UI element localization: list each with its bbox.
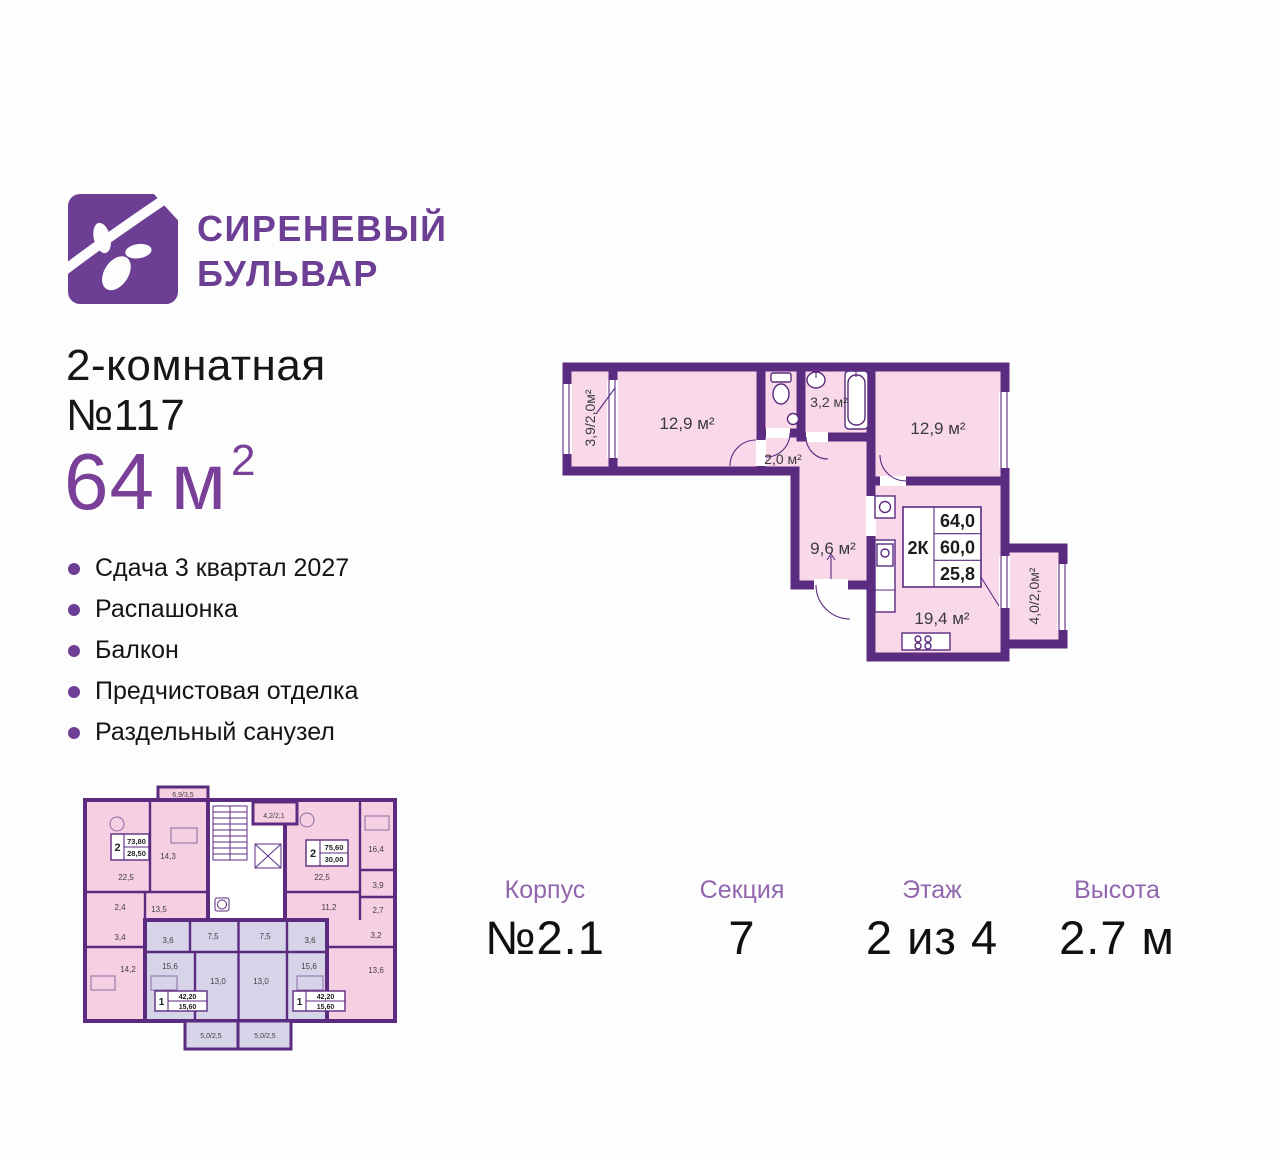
room-label: 9,6 м²	[810, 539, 856, 558]
room-label: 7,5	[259, 932, 271, 941]
room-label: 11,2	[322, 903, 338, 912]
room-label: 6,9/3,5	[172, 792, 194, 799]
window	[1057, 564, 1068, 630]
room-label: 3,6	[162, 936, 174, 945]
room-label: 16,4	[368, 845, 384, 854]
room-label: 5,0/2,5	[200, 1033, 222, 1040]
badge-total: 42,20	[179, 994, 197, 1001]
plan-type: 2К	[908, 538, 930, 558]
elevator-icon	[255, 844, 281, 868]
bullet-icon	[68, 727, 80, 739]
badge-total: 75,60	[325, 843, 344, 852]
section-floor-plan: 6,9/3,5 14,3 22,5 2,4 13,5 3,4 14,2 4,2/…	[75, 780, 420, 1070]
feature-label: Раздельный санузел	[95, 718, 335, 747]
detail-value: 7	[652, 910, 832, 965]
brand-logo	[68, 194, 178, 304]
room-label: 3,2 м²	[810, 394, 848, 410]
detail-height: Высота 2.7 м	[1027, 876, 1207, 965]
feature-list: Сдача 3 квартал 2027 Распашонка Балкон П…	[68, 548, 358, 753]
detail-label: Секция	[652, 876, 832, 905]
detail-building: Корпус №2.1	[455, 876, 635, 965]
area-value: 64	[64, 437, 155, 526]
sink-icon	[788, 414, 799, 425]
bullet-icon	[68, 563, 80, 575]
area-sup: 2	[231, 436, 256, 485]
room-label: 14,2	[120, 965, 136, 974]
detail-label: Корпус	[455, 876, 635, 905]
plan-area-total: 64,0	[940, 511, 975, 531]
badge-living: 15,60	[317, 1004, 335, 1011]
window	[561, 384, 572, 454]
listing-card: СИРЕНЕВЫЙ БУЛЬВАР 2-комнатная №117 64м2 …	[0, 0, 1280, 1160]
room-label: 2,0 м²	[764, 451, 802, 467]
room-label: 12,9 м²	[659, 414, 714, 433]
room-label: 19,4 м²	[914, 609, 969, 628]
room-label: 22,5	[118, 873, 134, 882]
bullet-icon	[68, 604, 80, 616]
stove-icon	[902, 633, 950, 650]
trash-chute-icon	[215, 898, 229, 911]
badge-living: 30,00	[325, 855, 344, 864]
apartment-number: №117	[66, 391, 326, 441]
feature-item: Предчистовая отделка	[68, 671, 358, 712]
room-label: 2,7	[372, 906, 384, 915]
apartment-area: 64м2	[64, 436, 252, 528]
badge-total: 42,20	[317, 994, 335, 1001]
room-label: 14,3	[160, 852, 176, 861]
room-label: 5,0/2,5	[254, 1033, 276, 1040]
area-unit: м	[171, 437, 227, 526]
badge-rooms: 1	[159, 997, 165, 1008]
kitchen-counter	[875, 540, 895, 612]
feature-label: Распашонка	[95, 595, 238, 624]
room-label: 3,6	[304, 936, 316, 945]
window	[999, 392, 1010, 468]
badge-total: 73,80	[127, 837, 146, 846]
room-label: 7,5	[207, 932, 219, 941]
room-label: 4,0/2,0м²	[1026, 567, 1042, 624]
room-label: 15,6	[162, 962, 178, 971]
brand-name: СИРЕНЕВЫЙ БУЛЬВАР	[197, 206, 448, 296]
detail-value: 2 из 4	[842, 910, 1022, 965]
detail-label: Высота	[1027, 876, 1207, 905]
apartment-badge: 1 42,20 15,60	[293, 991, 345, 1011]
detail-label: Этаж	[842, 876, 1022, 905]
brand-line2: БУЛЬВАР	[197, 251, 448, 296]
feature-item: Раздельный санузел	[68, 712, 358, 753]
apartment-type: 2-комнатная	[66, 341, 326, 391]
room-label: 3,4	[114, 933, 126, 942]
detail-value: №2.1	[455, 910, 635, 965]
detail-floor: Этаж 2 из 4	[842, 876, 1022, 965]
plan-area-living: 60,0	[940, 538, 975, 558]
room-label: 13,0	[210, 977, 226, 986]
plan-info-box: 2К 64,0 60,0 25,8	[903, 507, 981, 587]
room-label: 3,9/2,0м²	[582, 389, 598, 446]
bullet-icon	[68, 645, 80, 657]
bullet-icon	[68, 686, 80, 698]
room-label: 13,6	[368, 966, 384, 975]
feature-label: Предчистовая отделка	[95, 677, 358, 706]
badge-living: 15,60	[179, 1004, 197, 1011]
room-label: 22,5	[314, 873, 330, 882]
feature-label: Сдача 3 квартал 2027	[95, 554, 349, 583]
room-label: 12,9 м²	[910, 419, 965, 438]
badge-living: 28,50	[127, 849, 146, 858]
detail-section: Секция 7	[652, 876, 832, 965]
apartment-floor-plan: 3,9/2,0м² 12,9 м² 2,0 м² 3,2 м² 12,9 м² …	[550, 350, 1134, 674]
feature-item: Сдача 3 квартал 2027	[68, 548, 358, 589]
room-label: 15,6	[301, 962, 317, 971]
room-label: 13,5	[151, 905, 167, 914]
apartment-title: 2-комнатная №117	[66, 341, 326, 441]
feature-item: Балкон	[68, 630, 358, 671]
room-label: 4,2/2,1	[263, 813, 285, 820]
feature-label: Балкон	[95, 636, 179, 665]
room-label: 13,0	[253, 977, 269, 986]
washer-icon	[875, 496, 895, 518]
apartment-badge: 1 42,20 15,60	[155, 991, 207, 1011]
room-label: 3,2	[370, 931, 382, 940]
badge-rooms: 2	[310, 848, 316, 860]
toilet-icon	[771, 373, 791, 404]
feature-item: Распашонка	[68, 589, 358, 630]
apartment-badge: 2 75,60 30,00	[306, 840, 348, 866]
badge-rooms: 1	[297, 997, 303, 1008]
badge-rooms: 2	[114, 842, 120, 854]
detail-value: 2.7 м	[1027, 910, 1207, 965]
apartment-badge: 2 73,80 28,50	[111, 834, 149, 860]
plan-area-kitchen: 25,8	[940, 564, 975, 584]
room-label: 3,9	[372, 881, 384, 890]
room-label: 2,4	[114, 903, 126, 912]
bathtub-icon	[845, 371, 868, 429]
brand-line1: СИРЕНЕВЫЙ	[197, 206, 448, 251]
